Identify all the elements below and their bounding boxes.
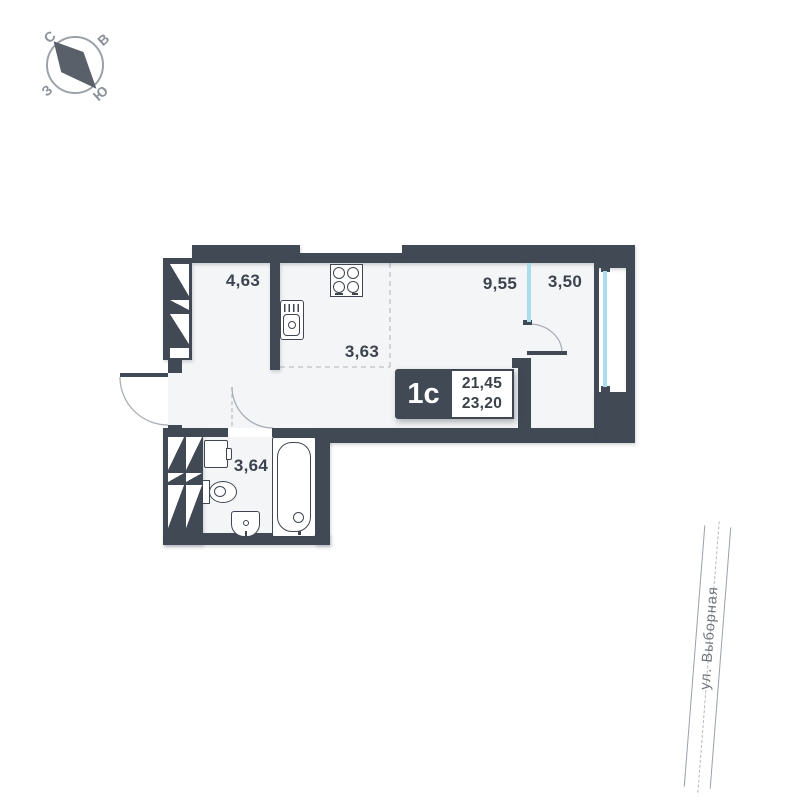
wall-bottom <box>315 428 594 443</box>
washing-machine-icon <box>204 440 228 468</box>
area-label-living: 9,55 <box>483 274 517 294</box>
entry-door-arc <box>120 377 168 425</box>
wall-bathroom-top-right <box>272 428 330 437</box>
unit-area-panel: 21,45 23,20 <box>452 369 514 419</box>
street-label: ул. Выборная <box>697 586 721 691</box>
wall-left-mid <box>168 360 182 373</box>
wall-top-hall <box>192 245 300 263</box>
balcony-window-glazing <box>603 271 607 387</box>
vent-shaft-cell <box>170 264 189 296</box>
wall-top-kitchen <box>300 253 402 263</box>
wall-top-right-corner <box>594 245 635 268</box>
washbasin-icon <box>231 511 260 537</box>
vent-shaft-cell <box>168 473 184 482</box>
wall-balcony-door-stop <box>527 351 567 355</box>
wall-bathroom-right <box>315 437 330 545</box>
unit-type-badge: 1с <box>395 369 452 419</box>
area-label-hall: 4,63 <box>226 271 260 291</box>
unit-info-box: 1с 21,45 23,20 <box>395 369 514 419</box>
vent-shaft-cell <box>168 437 184 470</box>
unit-area-main: 21,45 <box>462 374 502 394</box>
vent-shaft-cell <box>170 314 189 344</box>
kitchen-sink-icon <box>280 300 304 340</box>
wall-bathroom-top-left <box>182 428 228 437</box>
bathtub-icon <box>272 437 316 537</box>
unit-area-total: 23,20 <box>462 394 502 414</box>
vent-shaft-cell <box>186 437 202 470</box>
wall-window-inner-frame <box>594 263 599 392</box>
balcony-glass-partition <box>527 263 531 322</box>
stove-icon <box>330 264 363 297</box>
vent-shaft-cell <box>186 485 202 528</box>
wall-top-living <box>402 245 594 263</box>
vent-shaft-cell <box>186 473 202 482</box>
floor-plan: 4,63 3,63 9,55 3,50 3,64 1с 21,45 23,20 <box>0 0 800 800</box>
wall-right-outer <box>626 268 635 392</box>
page: С В Ю З <box>0 0 800 800</box>
vent-shaft-cell <box>168 485 184 528</box>
wall-niche <box>170 348 189 358</box>
wall-hall-kitchen-divider <box>270 263 280 370</box>
area-label-bathroom: 3,64 <box>234 456 268 476</box>
wall-bottom-right-corner <box>594 392 635 443</box>
toilet-bowl <box>209 481 237 503</box>
vent-shaft-cell <box>170 300 189 310</box>
wall-stub <box>518 358 531 428</box>
entry-door-leaf <box>120 373 168 377</box>
area-label-kitchen: 3,63 <box>345 342 379 362</box>
area-label-balcony: 3,50 <box>548 272 582 292</box>
